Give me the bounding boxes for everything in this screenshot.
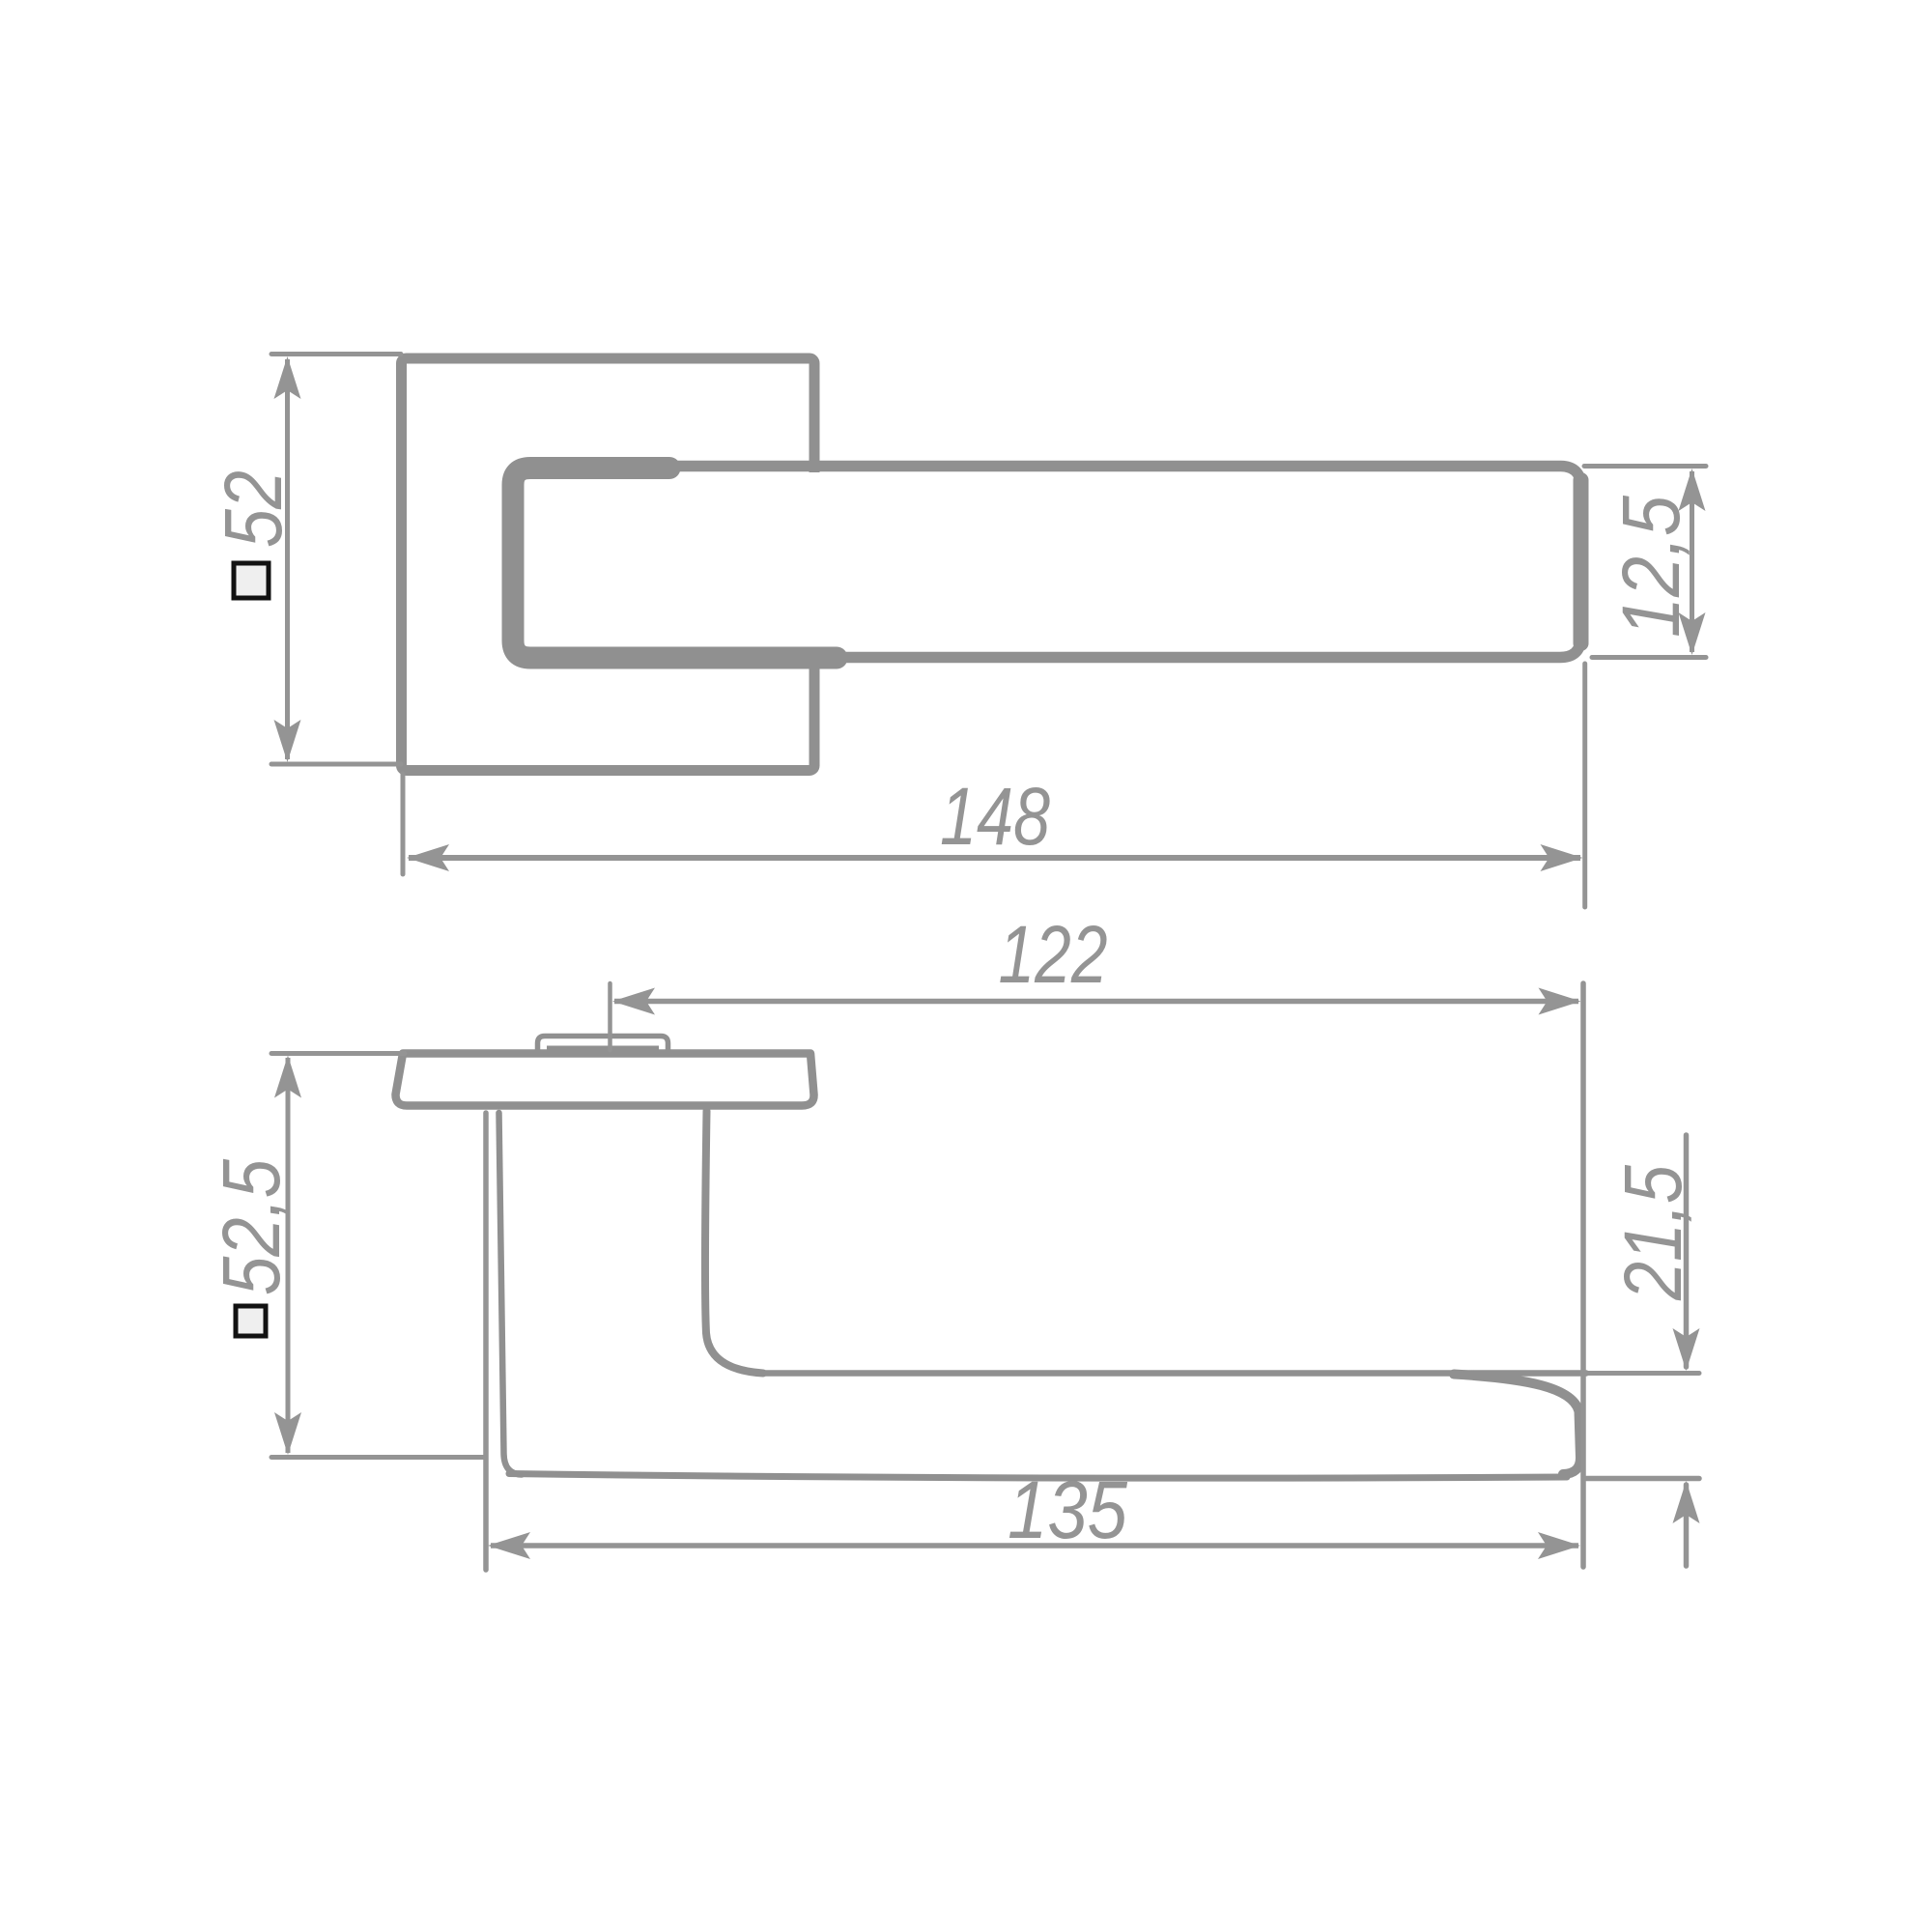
svg-text:122: 122 (999, 909, 1108, 1000)
svg-text:21,5: 21,5 (1607, 1165, 1698, 1301)
svg-text:52,5: 52,5 (206, 1159, 297, 1295)
svg-text:52: 52 (208, 470, 298, 548)
svg-text:12,5: 12,5 (1605, 496, 1696, 638)
svg-text:135: 135 (1008, 1464, 1127, 1555)
svg-text:148: 148 (940, 771, 1050, 862)
